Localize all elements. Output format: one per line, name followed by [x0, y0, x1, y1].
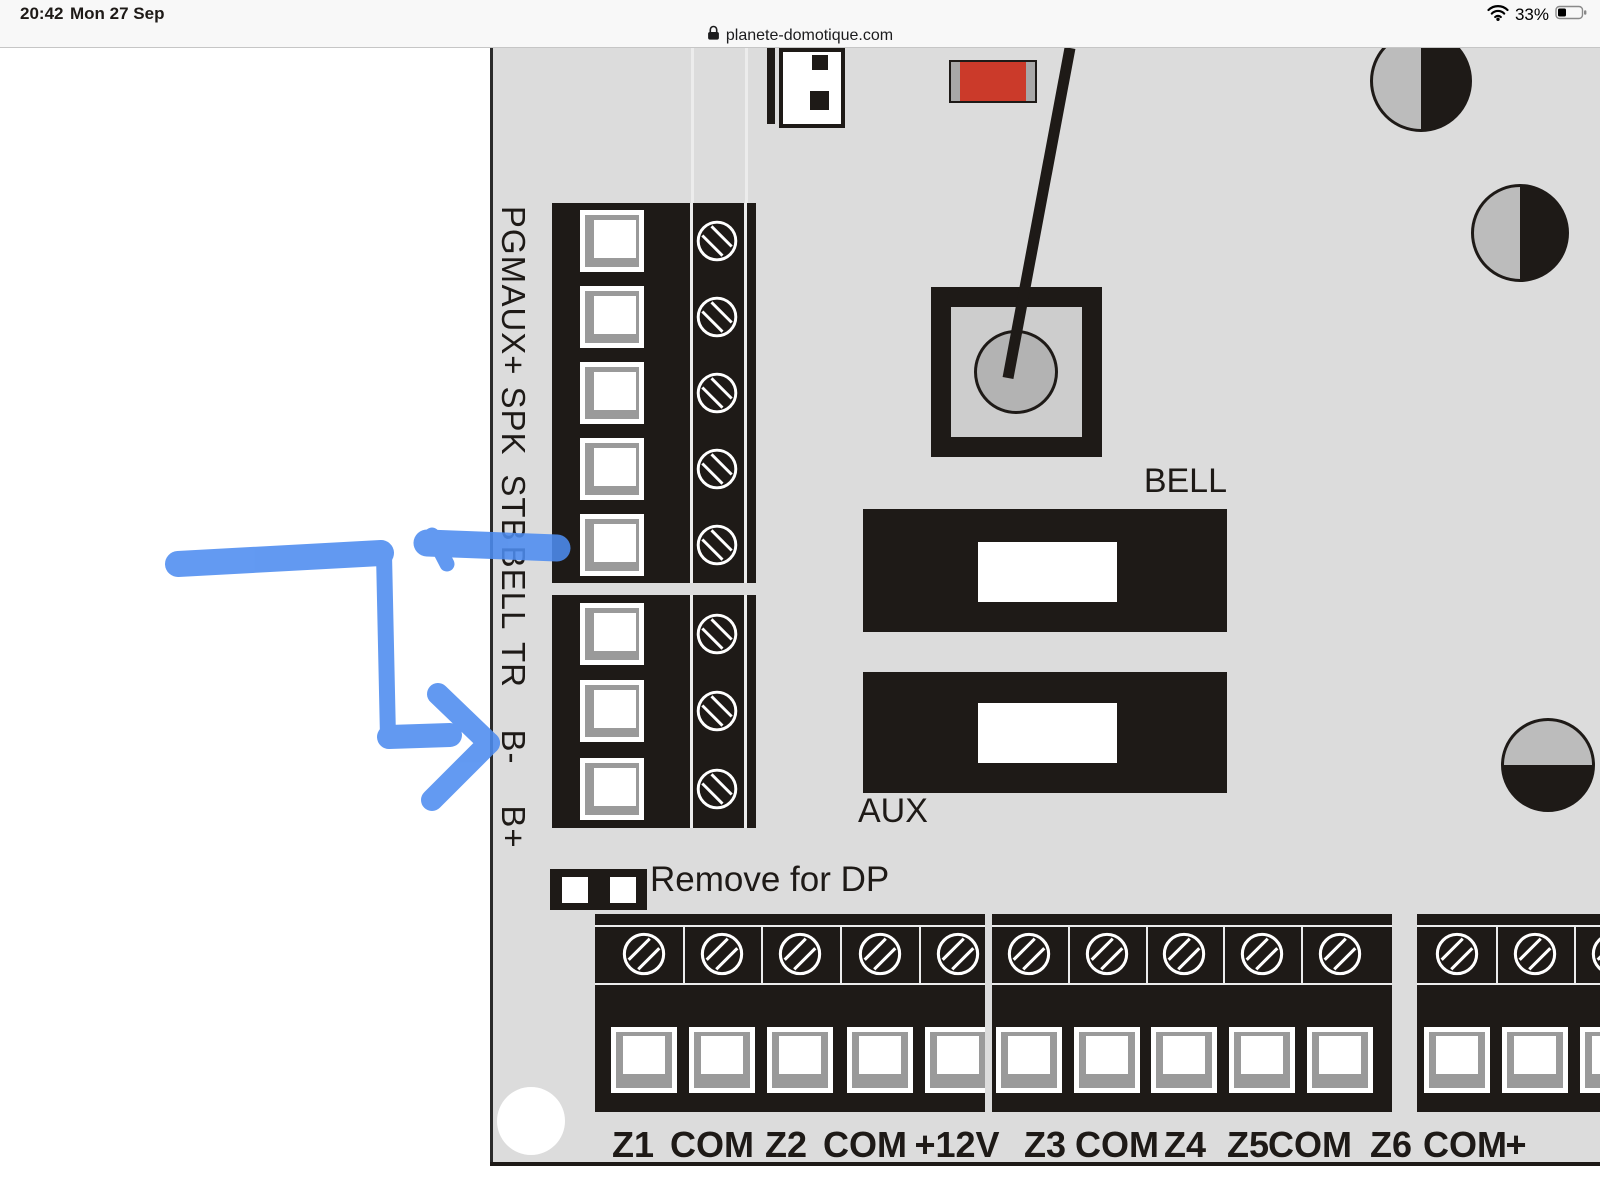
jumper-pin [562, 877, 588, 903]
zone-terminal-block [595, 914, 985, 1112]
zone-terminal-label: COM [1423, 1124, 1507, 1166]
opening-core [594, 613, 636, 651]
connector-pin [812, 55, 828, 70]
screw-head-icon [1434, 931, 1480, 977]
aux-relay [863, 672, 1227, 793]
block-separator [992, 925, 1392, 927]
opening-core [594, 220, 636, 258]
opening-core [1319, 1036, 1361, 1074]
dp-jumper [550, 869, 647, 910]
side-terminal-label: AUX+ [494, 284, 532, 375]
header-connector [779, 48, 845, 128]
terminal-opening [847, 1027, 913, 1093]
status-date: Mon 27 Sep [70, 4, 164, 24]
zone-terminal-label: + [1505, 1124, 1526, 1166]
zone-terminal-label: Z5 [1227, 1124, 1269, 1166]
terminal-opening [580, 438, 644, 500]
terminal-opening [580, 758, 644, 820]
terminal-opening [1424, 1027, 1490, 1093]
battery-percentage: 33% [1515, 5, 1549, 25]
address-bar[interactable]: planete-domotique.com [0, 23, 1600, 48]
terminal-opening [580, 603, 644, 665]
mounting-hole-white [497, 1087, 565, 1155]
side-terminal-label: SPK [494, 386, 532, 455]
opening-core [701, 1036, 743, 1074]
terminal-opening [1074, 1027, 1140, 1093]
image-left-border [490, 48, 493, 1166]
block-separator [595, 983, 985, 985]
screw-head-icon [1084, 931, 1130, 977]
screw-head-icon [695, 295, 739, 339]
screw-head-icon [695, 689, 739, 733]
mounting-hole [1501, 718, 1595, 812]
potentiometer-dial [974, 330, 1058, 414]
cell-separator [683, 925, 685, 985]
status-and-address-bar: 20:42 Mon 27 Sep 33% [0, 0, 1600, 48]
block-separator [595, 925, 985, 927]
fuse-cap [1026, 62, 1035, 101]
side-terminal-label: BELL [494, 546, 532, 631]
connector-pin-bar [767, 48, 775, 124]
pcb-line [691, 48, 694, 204]
mounting-hole [1471, 184, 1569, 282]
jumper-pin [610, 877, 636, 903]
opening-core [623, 1036, 665, 1074]
opening-core [1241, 1036, 1283, 1074]
terminal-opening [580, 210, 644, 272]
cell-separator [1301, 925, 1303, 985]
jumper-note: Remove for DP [650, 860, 889, 900]
screw-head-icon [695, 523, 739, 567]
screw-head-icon [695, 767, 739, 811]
screw-head-icon [1512, 931, 1558, 977]
terminal-opening [580, 362, 644, 424]
side-terminal-label: PGM [494, 206, 532, 284]
screw-head-icon [1239, 931, 1285, 977]
mounting-hole [1370, 48, 1472, 132]
red-fuse-component [949, 60, 1037, 103]
block-separator [744, 203, 747, 583]
cell-separator [840, 925, 842, 985]
terminal-opening [580, 286, 644, 348]
screw-head-icon [695, 447, 739, 491]
terminal-opening [611, 1027, 677, 1093]
screw-head-icon [1006, 931, 1052, 977]
cell-separator [1574, 925, 1576, 985]
opening-core [594, 448, 636, 486]
opening-core [859, 1036, 901, 1074]
bell-relay [863, 509, 1227, 632]
zone-terminal-block [1417, 914, 1600, 1112]
cell-separator [1496, 925, 1498, 985]
zone-terminal-label: Z6 [1370, 1124, 1412, 1166]
opening-core [594, 296, 636, 334]
side-terminal-block [552, 203, 756, 583]
screw-head-icon [1590, 931, 1600, 977]
ipad-safari-screenshot: 20:42 Mon 27 Sep 33% [0, 0, 1600, 1200]
opening-core [1163, 1036, 1205, 1074]
block-separator [1417, 925, 1600, 927]
screw-head-icon [695, 371, 739, 415]
opening-core [1086, 1036, 1128, 1074]
zone-terminal-label: COM [670, 1124, 754, 1166]
zone-terminal-label: COM [1075, 1124, 1159, 1166]
opening-core [1514, 1036, 1556, 1074]
terminal-opening [580, 514, 644, 576]
opening-core [779, 1036, 821, 1074]
zone-terminal-label: +12V [914, 1124, 999, 1166]
screw-head-icon [857, 931, 903, 977]
opening-core [594, 768, 636, 806]
terminal-opening [1580, 1027, 1600, 1093]
cell-separator [1146, 925, 1148, 985]
terminal-opening [1151, 1027, 1217, 1093]
opening-core [1592, 1036, 1600, 1074]
terminal-opening [1229, 1027, 1295, 1093]
screw-head-icon [1317, 931, 1363, 977]
aux-relay-label: AUX [858, 792, 928, 831]
terminal-opening [996, 1027, 1062, 1093]
terminal-opening [767, 1027, 833, 1093]
screw-head-icon [695, 612, 739, 656]
side-terminal-block [552, 595, 756, 828]
battery-icon [1555, 5, 1588, 25]
lock-icon [707, 25, 720, 46]
zone-terminal-label: Z1 [612, 1124, 654, 1166]
side-terminal-label: TR [494, 642, 532, 688]
pcb-line [745, 48, 748, 204]
side-terminal-label: B- [494, 730, 532, 765]
screw-head-icon [777, 931, 823, 977]
block-separator [1417, 983, 1600, 985]
opening-core [594, 690, 636, 728]
screw-head-icon [935, 931, 981, 977]
block-separator [744, 595, 747, 828]
block-separator [690, 595, 693, 828]
terminal-opening [1307, 1027, 1373, 1093]
status-time: 20:42 [20, 4, 63, 24]
address-domain: planete-domotique.com [726, 27, 893, 45]
block-separator [992, 983, 1392, 985]
zone-terminal-block [992, 914, 1392, 1112]
alarm-panel-wiring-diagram-image: BELL AUX Remove for DP PGMAUX+SPKSTBBELL… [490, 48, 1600, 1166]
fuse-cap [951, 62, 960, 101]
screw-head-icon [695, 219, 739, 263]
zone-terminal-label: COM [823, 1124, 907, 1166]
terminal-opening [580, 680, 644, 742]
zone-terminal-label: Z3 [1024, 1124, 1066, 1166]
block-separator [690, 203, 693, 583]
screw-head-icon [699, 931, 745, 977]
opening-core [937, 1036, 979, 1074]
cell-separator [919, 925, 921, 985]
zone-terminal-label: COM [1268, 1124, 1352, 1166]
terminal-opening [1502, 1027, 1568, 1093]
cell-separator [1068, 925, 1070, 985]
zone-terminal-label: Z4 [1164, 1124, 1206, 1166]
side-terminal-label: B+ [494, 805, 532, 848]
relay-window [978, 703, 1117, 763]
zone-terminal-label: Z2 [765, 1124, 807, 1166]
screw-head-icon [1161, 931, 1207, 977]
opening-core [1436, 1036, 1478, 1074]
terminal-opening [925, 1027, 985, 1093]
connector-pin [810, 91, 829, 110]
bell-relay-label: BELL [1090, 462, 1227, 501]
screw-head-icon [621, 931, 667, 977]
opening-core [1008, 1036, 1050, 1074]
opening-core [594, 372, 636, 410]
opening-core [594, 524, 636, 562]
relay-window [978, 542, 1117, 602]
terminal-opening [689, 1027, 755, 1093]
side-terminal-label: STB [494, 474, 532, 541]
cell-separator [761, 925, 763, 985]
cell-separator [1223, 925, 1225, 985]
